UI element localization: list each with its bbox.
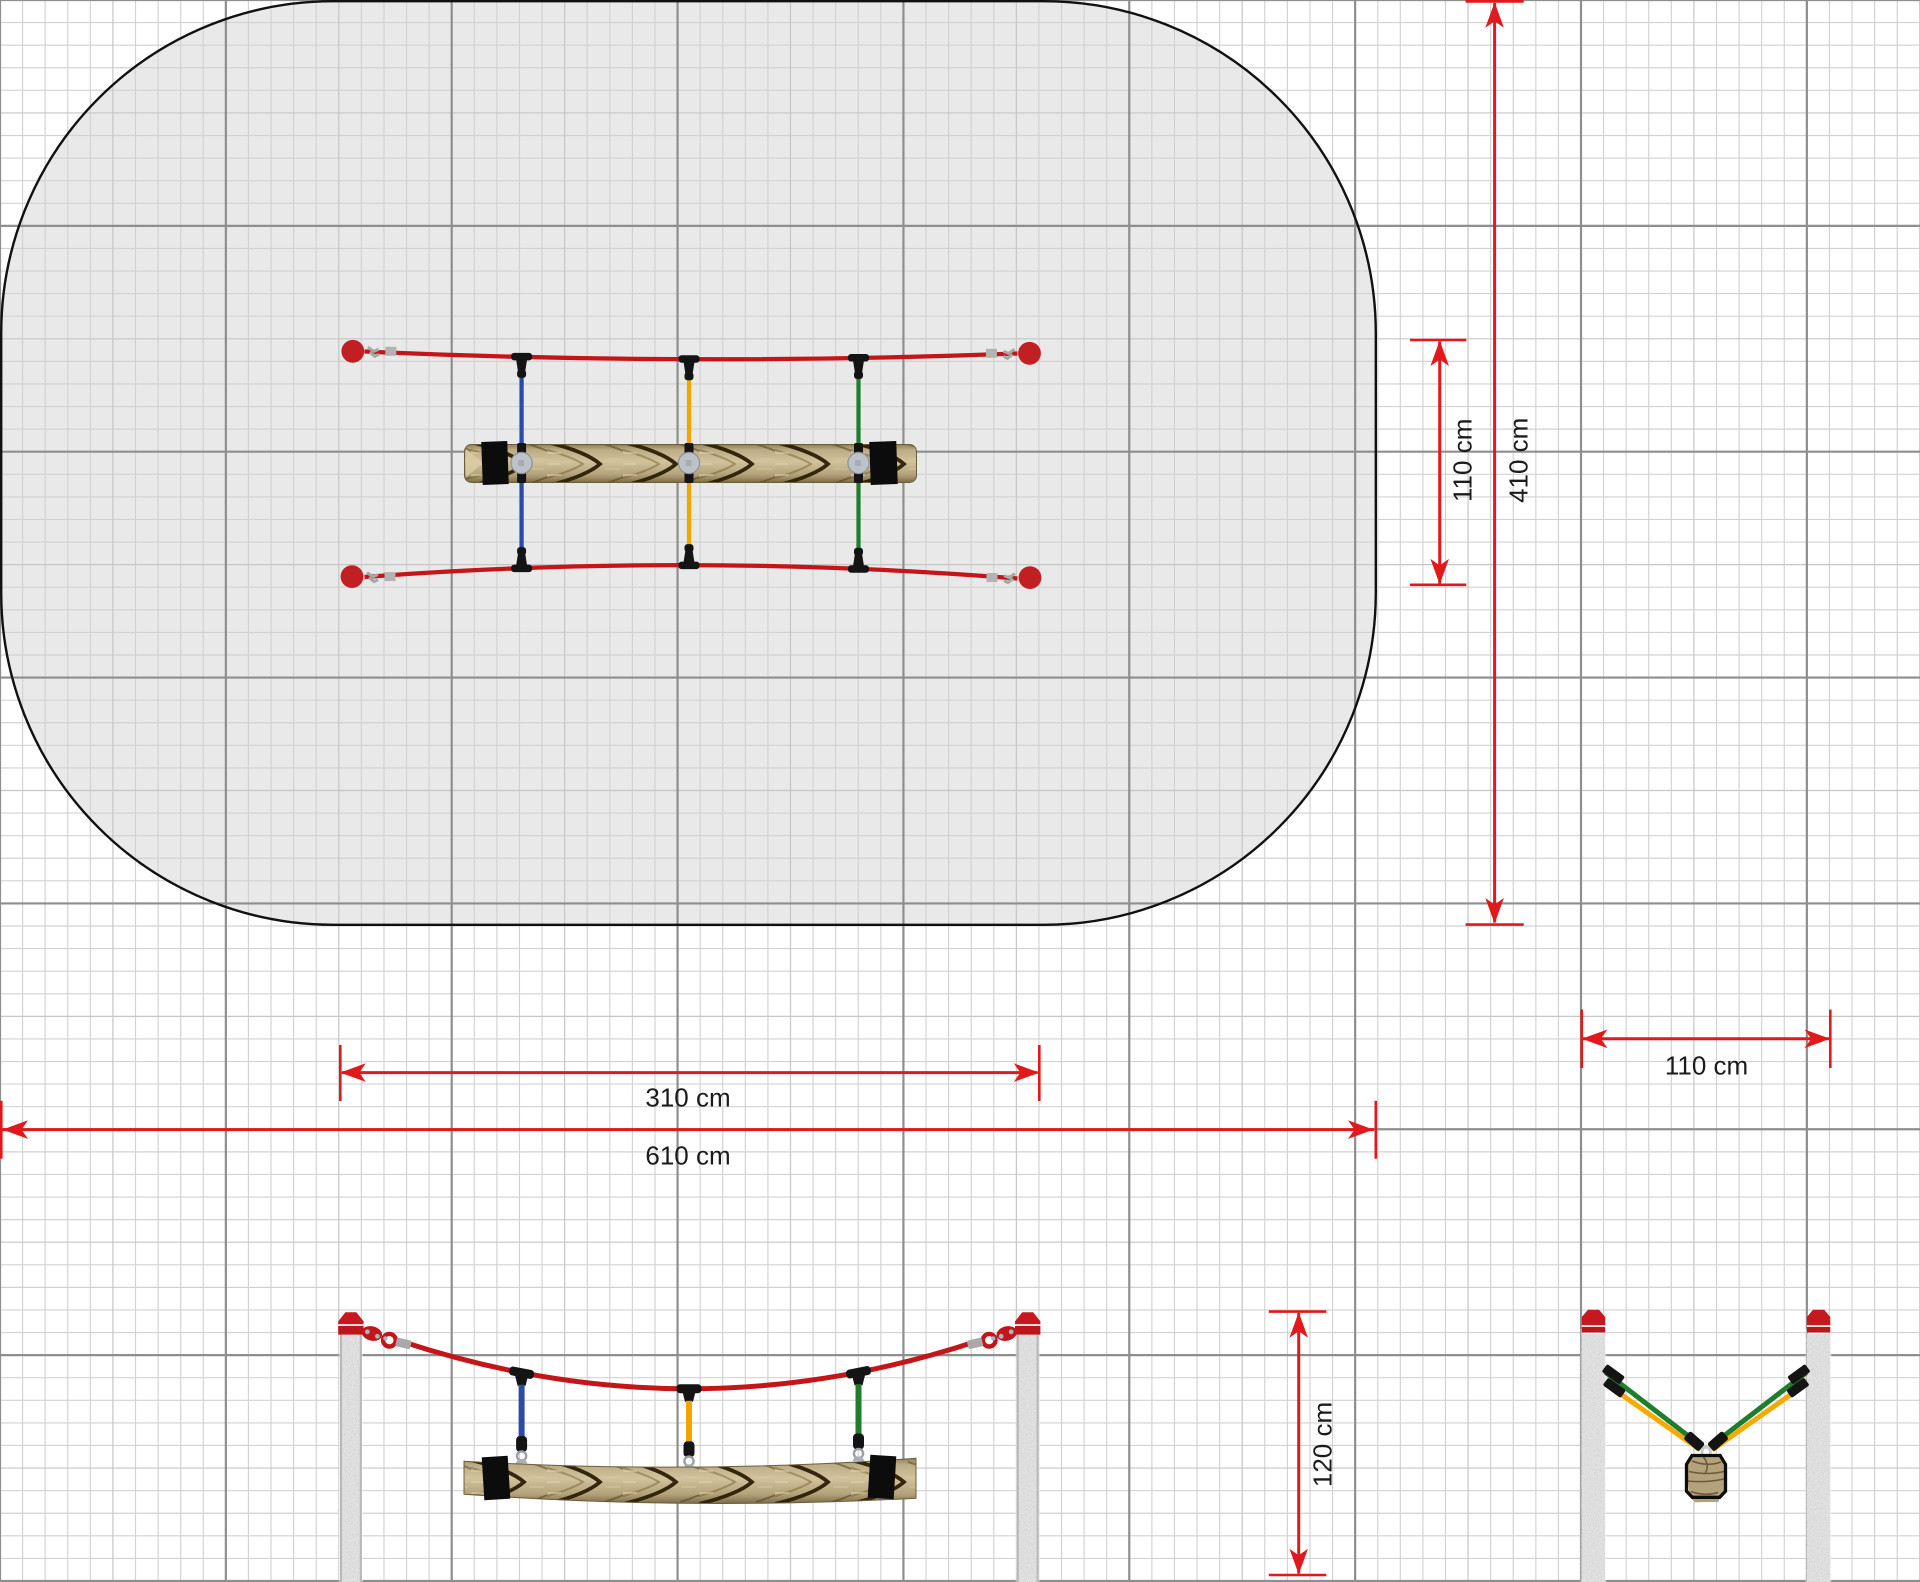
svg-text:610 cm: 610 cm bbox=[645, 1141, 730, 1171]
svg-text:410 cm: 410 cm bbox=[1504, 418, 1534, 503]
svg-text:310 cm: 310 cm bbox=[645, 1083, 730, 1113]
svg-text:110 cm: 110 cm bbox=[1665, 1050, 1748, 1080]
svg-text:120 cm: 120 cm bbox=[1308, 1402, 1338, 1487]
svg-text:110 cm: 110 cm bbox=[1448, 419, 1478, 502]
